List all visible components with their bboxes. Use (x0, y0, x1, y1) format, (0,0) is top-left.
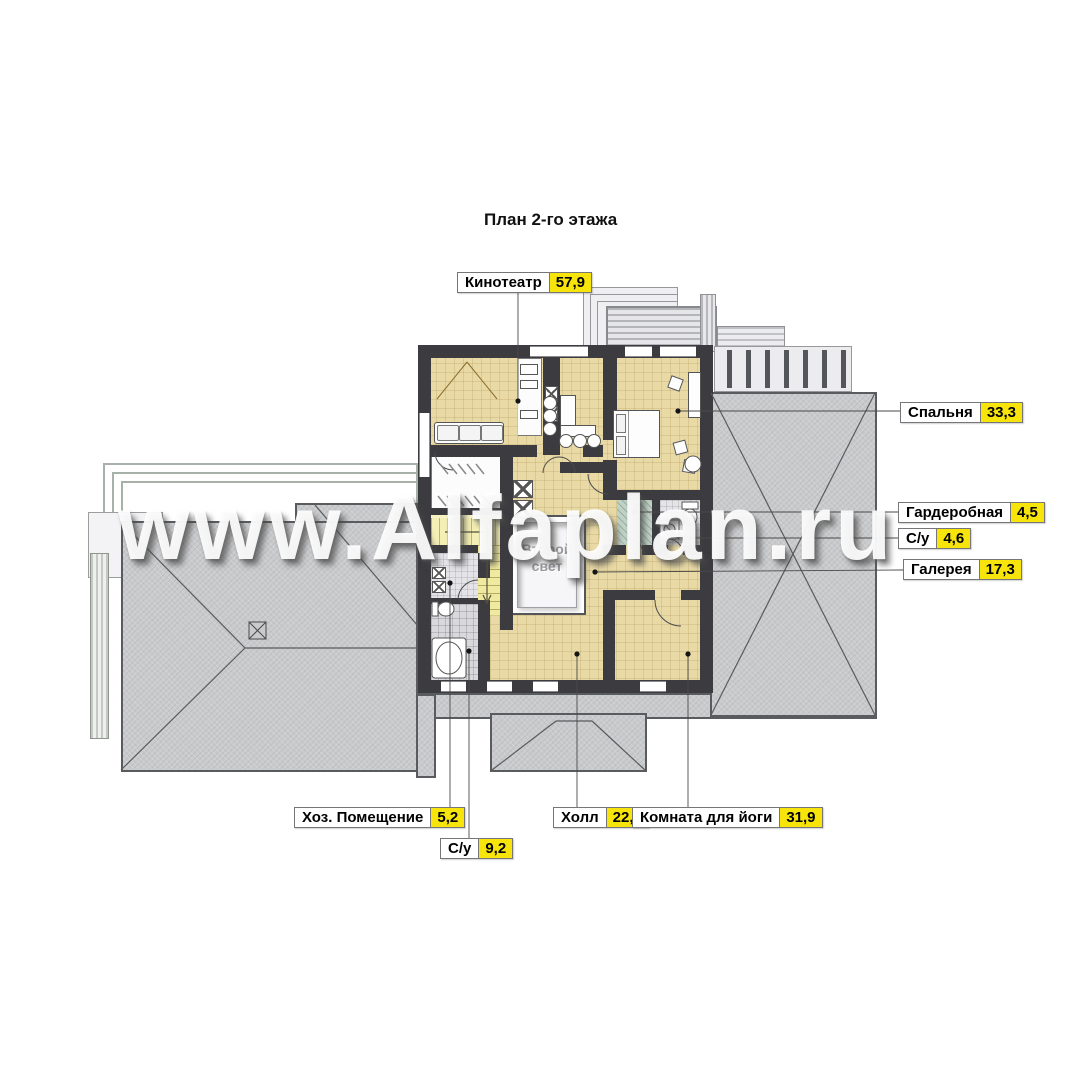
room-name: Комната для йоги (633, 808, 779, 827)
page-title: План 2-го этажа (484, 210, 617, 230)
room-name: Гардеробная (899, 503, 1010, 522)
desk (688, 372, 701, 418)
window (419, 413, 430, 477)
floor-plan-page: Второйсвет (0, 0, 1081, 1080)
window (625, 346, 652, 357)
bar-counter (560, 395, 576, 427)
room-label-yoga: Комната для йоги31,9 (632, 807, 823, 828)
wall-bath-east (478, 600, 490, 680)
window (533, 681, 558, 692)
roof-pillar (416, 694, 436, 778)
room-name: Хоз. Помещение (295, 808, 430, 827)
chair (682, 459, 697, 474)
balcony-posts (714, 346, 852, 392)
room-label-su-bottom: С/у9,2 (440, 838, 513, 859)
roof-porch (490, 713, 647, 772)
room-name: Спальня (901, 403, 980, 422)
window (487, 681, 512, 692)
wall-corridor (560, 462, 603, 473)
window (441, 681, 466, 692)
shaft-icon (545, 406, 558, 422)
kitchen-cabinet (520, 364, 538, 375)
room-area: 4,5 (1010, 503, 1044, 522)
washer-icon (432, 581, 446, 593)
bar-counter (560, 425, 596, 437)
sofa (434, 422, 504, 444)
room-area: 9,2 (478, 839, 512, 858)
room-area: 17,3 (979, 560, 1021, 579)
room-label-holl: Холл22,1 (553, 807, 649, 828)
window (530, 346, 588, 357)
room-label-hoz: Хоз. Помещение5,2 (294, 807, 465, 828)
window (640, 681, 666, 692)
room-area: 33,3 (980, 403, 1022, 422)
room-name: Галерея (904, 560, 979, 579)
wall-cinema-south (583, 445, 603, 457)
bathroom-floor (431, 604, 478, 680)
room-label-su-top: С/у4,6 (898, 528, 971, 549)
room-name: С/у (899, 529, 936, 548)
window (660, 346, 696, 357)
kitchen-cabinet (520, 410, 538, 419)
room-name: С/у (441, 839, 478, 858)
room-area: 5,2 (430, 808, 464, 827)
flue-strip (700, 294, 716, 352)
wall-gallery-yoga (681, 590, 713, 600)
wall-utility-bath (431, 598, 478, 604)
wall-yoga-west (603, 590, 615, 680)
room-name: Кинотеатр (458, 273, 549, 292)
shaft-icon (545, 386, 558, 402)
room-area: 22,1 (606, 808, 648, 827)
deck-left (90, 553, 109, 739)
kitchen-cabinet (520, 380, 538, 389)
room-label-kinoteatr: Кинотеатр57,9 (457, 272, 592, 293)
room-label-galereya: Галерея17,3 (903, 559, 1022, 580)
room-name: Холл (554, 808, 606, 827)
bed (613, 410, 660, 458)
watermark: www.Alfaplan.ru (118, 482, 895, 574)
room-label-spalnya: Спальня33,3 (900, 402, 1023, 423)
room-area: 31,9 (779, 808, 821, 827)
room-area: 4,6 (936, 529, 970, 548)
wall-cinema-south (431, 445, 537, 457)
room-label-garderobnaya: Гардеробная4,5 (898, 502, 1045, 523)
